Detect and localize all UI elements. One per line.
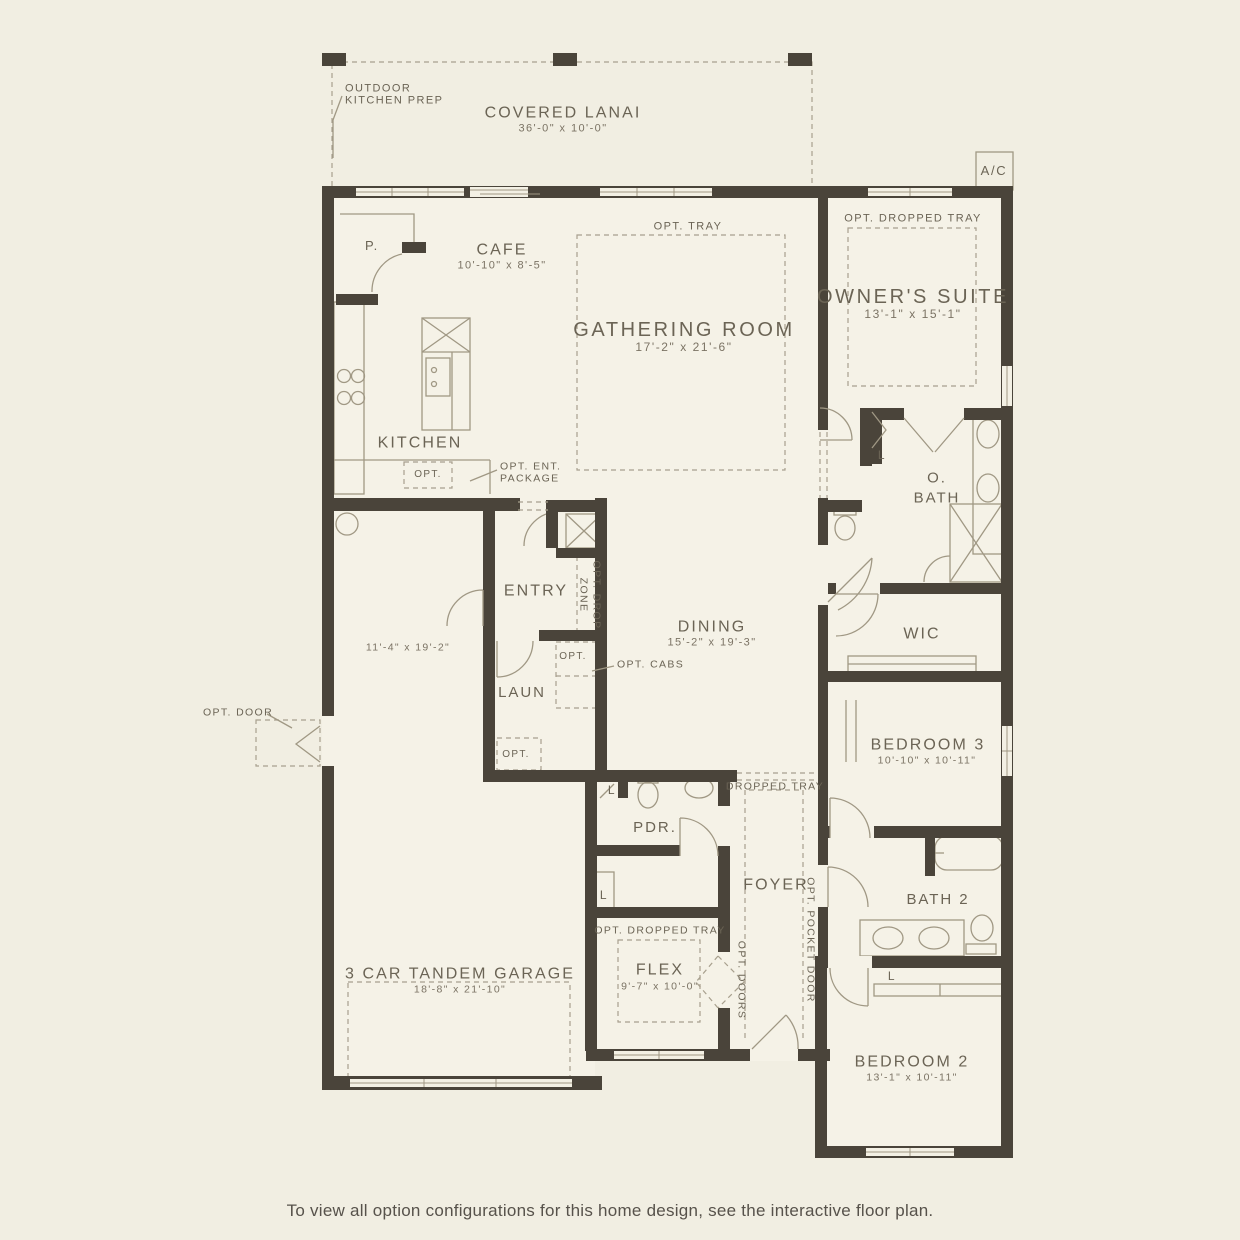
- flex-label: FLEX: [636, 960, 684, 979]
- outdoor-kitchen-prep-label-line2: KITCHEN PREP: [345, 94, 443, 107]
- wic-label: WIC: [903, 624, 940, 643]
- dropped-tray-label: DROPPED TRAY: [726, 781, 824, 794]
- garage-dims: 18'-8" x 21'-10": [414, 984, 506, 997]
- opt-ent-package-label-line2: PACKAGE: [500, 473, 560, 486]
- opt-cabs-label: OPT. CABS: [617, 659, 684, 672]
- bath2-label: BATH 2: [906, 891, 969, 909]
- pantry-label: P.: [365, 238, 379, 254]
- covered-lanai-label: COVERED LANAI: [485, 103, 642, 122]
- garage-label: 3 CAR TANDEM GARAGE: [345, 964, 575, 983]
- floor-plan-drawing: [0, 0, 1240, 1240]
- dining-dims: 15'-2" x 19'-3": [667, 636, 756, 649]
- owners-suite-opt-tray-label: OPT. DROPPED TRAY: [844, 212, 982, 225]
- laundry-label: LAUN: [498, 684, 546, 702]
- bedroom2-label: BEDROOM 2: [855, 1052, 970, 1071]
- owner-bath-line2: BATH: [914, 488, 961, 508]
- bedroom2-dims: 13'-1" x 10'-11": [866, 1072, 957, 1085]
- covered-lanai-dims: 36'-0" x 10'-0": [518, 122, 607, 135]
- opt-doors-label: OPT. DOORS: [735, 941, 748, 1019]
- bedroom3-dims: 10'-10" x 10'-11": [878, 755, 977, 768]
- powder-linen-label: L: [608, 783, 616, 797]
- kitchen-opt-label: OPT.: [414, 469, 441, 481]
- opt-pocket-door-label: OPT. POCKET DOOR: [804, 877, 817, 1003]
- opt-door-label: OPT. DOOR: [203, 707, 273, 720]
- opt-drop-zone-label: OPT. DROP ZONE: [577, 561, 602, 630]
- garage-upper-dims: 11'-4" x 19'-2": [366, 642, 450, 655]
- owner-bath-linen-label: L: [878, 448, 886, 462]
- page-caption: To view all option configurations for th…: [287, 1201, 934, 1221]
- owner-bath-line1: O.: [914, 469, 961, 489]
- gathering-room-dims: 17'-2" x 21'-6": [635, 340, 732, 354]
- flex-dims: 9'-7" x 10'-0": [621, 981, 699, 994]
- dining-label: DINING: [678, 617, 746, 636]
- cafe-dims: 10'-10" x 8'-5": [457, 259, 546, 272]
- bath2-linen-label: L: [888, 969, 896, 983]
- laundry-opt-box-label: OPT.: [559, 651, 586, 663]
- kitchen-label: KITCHEN: [378, 433, 463, 452]
- laundry-opt-label: OPT.: [502, 749, 529, 761]
- foyer-label: FOYER: [743, 875, 809, 894]
- owners-suite-dims: 13'-1" x 15'-1": [864, 307, 961, 321]
- opt-drop-zone-line2: ZONE: [577, 561, 590, 630]
- entry-label: ENTRY: [504, 581, 568, 600]
- owner-bath-label: O. BATH: [914, 469, 961, 508]
- opt-drop-zone-line1: OPT. DROP: [590, 561, 603, 630]
- bedroom3-label: BEDROOM 3: [871, 735, 986, 754]
- opt-ent-package-label-line1: OPT. ENT.: [500, 461, 561, 474]
- owners-suite-label: OWNER'S SUITE: [817, 285, 1009, 309]
- gathering-opt-tray-label: OPT. TRAY: [654, 220, 723, 233]
- ac-label: A/C: [981, 163, 1008, 179]
- cafe-label: CAFE: [477, 240, 528, 259]
- flex-opt-tray-label: OPT. DROPPED TRAY: [594, 925, 725, 938]
- hall-linen-label: L: [600, 888, 608, 902]
- gathering-room-label: GATHERING ROOM: [573, 318, 795, 342]
- floor-plan-page: OUTDOOR KITCHEN PREP COVERED LANAI 36'-0…: [0, 0, 1240, 1240]
- powder-label: PDR.: [633, 819, 677, 837]
